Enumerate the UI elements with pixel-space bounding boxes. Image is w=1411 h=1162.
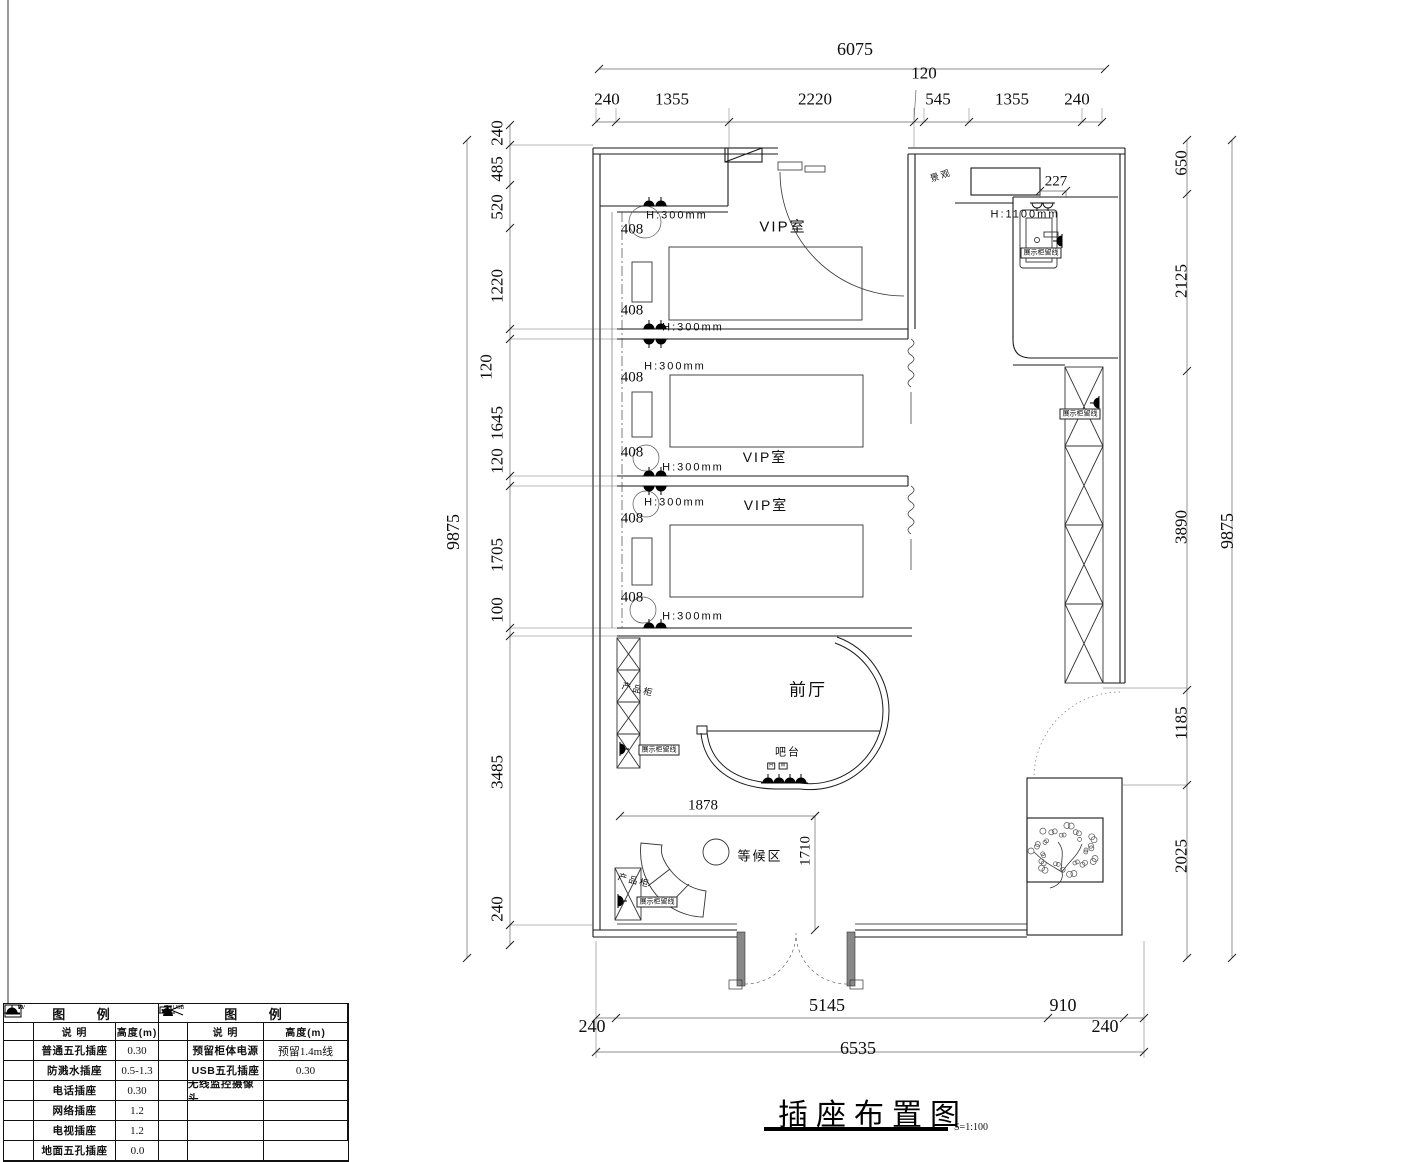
drawing-scale: S=1:100	[954, 1122, 988, 1133]
legend-height: 1.2	[116, 1101, 159, 1121]
legend-symbol-cell: TV	[4, 1121, 34, 1141]
dimension-lines	[467, 69, 1232, 1058]
plant-leaf	[1040, 828, 1046, 834]
legend-symbol-cell	[159, 1041, 188, 1061]
plant-leaf	[1039, 865, 1045, 871]
floor-plan-canvas	[0, 0, 1411, 1162]
socket-layout-drawing: 6075240135522201205451355240514591024024…	[0, 0, 1411, 1162]
socket-symbol	[772, 774, 786, 783]
socket-symbol	[642, 619, 656, 628]
socket-symbol	[620, 742, 629, 756]
legend-symbol-cell: USB	[159, 1061, 188, 1081]
socket-height-label: H:300mm	[662, 323, 724, 334]
dimension-label: 120	[489, 448, 506, 474]
socket-circles	[629, 206, 661, 623]
plant-leaf	[1067, 871, 1073, 877]
legend-height: 0.30	[116, 1041, 159, 1061]
legend-desc	[188, 1121, 264, 1141]
legend-height: 0.5-1.3	[116, 1061, 159, 1081]
legend-symbol-cell: P	[4, 1081, 34, 1101]
plant-leaf	[1028, 848, 1034, 854]
room-label: 前厅	[789, 682, 827, 699]
plant-leaf	[1068, 823, 1074, 829]
legend-desc	[188, 1101, 264, 1121]
dimension-label: 910	[1050, 996, 1077, 1014]
bar-counter	[697, 637, 889, 790]
dimension-label: 1355	[655, 91, 689, 108]
dimension-label: 120	[911, 65, 937, 82]
plant-leaf	[1042, 867, 1048, 873]
socket-symbol	[654, 339, 668, 348]
legend-column-header: 高度(m)	[116, 1023, 159, 1041]
socket-symbol	[1053, 234, 1062, 248]
dimension-label: 545	[925, 91, 951, 108]
dimension-label: 3485	[489, 755, 506, 789]
plant-leaf	[1073, 861, 1077, 865]
vip3-bed	[670, 525, 863, 597]
dimension-label: 408	[621, 304, 644, 319]
dimension-label: 408	[621, 446, 644, 461]
legend-desc: 普通五孔插座	[34, 1041, 116, 1061]
legend-symbol-cell	[159, 1121, 188, 1141]
legend-desc: USB五孔插座	[188, 1061, 264, 1081]
socket-symbol	[654, 486, 668, 495]
legend-desc: 无线监控摄像头	[188, 1081, 264, 1101]
dimension-label: 6535	[840, 1039, 876, 1057]
dimension-label: 3890	[1173, 510, 1190, 544]
legend-symbol-cell	[159, 1141, 188, 1161]
dimension-label: 240	[579, 1017, 606, 1035]
legend-desc: 电视插座	[34, 1121, 116, 1141]
legend-height: 预留1.4m线	[264, 1041, 348, 1061]
dimension-label: 1645	[489, 406, 506, 440]
room-label: VIP室	[759, 220, 806, 235]
socket-height-label: H:300mm	[646, 211, 708, 222]
dimension-label: 1710	[799, 836, 814, 866]
dimension-label: 240	[489, 120, 506, 146]
legend-desc: 电话插座	[34, 1081, 116, 1101]
dimension-label: 2220	[798, 91, 832, 108]
legend-height	[264, 1141, 348, 1161]
dimension-label: 227	[1045, 175, 1068, 190]
dimension-label: 520	[489, 194, 506, 220]
legend-desc: 预留柜体电源	[188, 1041, 264, 1061]
room-label: VIP室	[744, 498, 789, 512]
dimension-label: 408	[621, 371, 644, 386]
dimension-label: 2025	[1173, 839, 1190, 873]
dimension-label: 240	[1064, 91, 1090, 108]
plant-leaf	[1056, 862, 1060, 866]
dimension-label: 1355	[995, 91, 1029, 108]
legend-symbol-cell: W	[4, 1101, 34, 1121]
legend-table-right: 图 例说 明高度(m)预留柜体电源预留1.4m线USBUSB五孔插座0.30无线…	[158, 1003, 349, 1162]
dimension-label: 1185	[1173, 706, 1190, 739]
cabinet-reserve-label: 展示柜留线	[1060, 409, 1101, 420]
plant-leaf	[1071, 871, 1077, 877]
legend-height: 0.30	[264, 1061, 348, 1081]
dimension-label: 650	[1173, 150, 1190, 176]
socket-type-label: H	[767, 763, 775, 770]
plant-leaf	[1076, 831, 1081, 836]
dimension-label: 9875	[1218, 513, 1236, 549]
plant-leaf	[1062, 833, 1066, 837]
socket-symbol	[783, 774, 797, 783]
legend-height	[264, 1081, 348, 1101]
display-cabinets	[615, 367, 1103, 920]
dimension-label: 5145	[809, 996, 845, 1014]
dimension-label: 408	[621, 223, 644, 238]
legend-symbol-cell	[4, 1141, 34, 1161]
socket-height-label: H:300mm	[644, 362, 706, 373]
socket-height-label: H:1100mm	[991, 210, 1060, 221]
dimension-label: 6075	[837, 40, 873, 58]
socket-symbol	[642, 320, 656, 329]
axis-lines	[612, 212, 622, 628]
room-label: VIP室	[743, 450, 788, 464]
dimension-label: 120	[478, 354, 495, 380]
socket-height-label: H:300mm	[644, 498, 706, 509]
dimension-label: 240	[489, 896, 506, 922]
legend-height: 0.30	[116, 1081, 159, 1101]
cabinet-reserve-label: 展示柜留线	[639, 745, 680, 756]
legend-height: 1.2	[116, 1121, 159, 1141]
legend-height	[264, 1121, 348, 1141]
legend-desc	[188, 1141, 264, 1161]
plant-leaf	[1078, 837, 1082, 841]
round-table	[703, 839, 729, 865]
socket-symbol	[654, 197, 668, 206]
vip1-bed	[669, 247, 862, 320]
cabinet-reserve-label: 展示柜留线	[637, 897, 678, 908]
dimension-label: 408	[621, 591, 644, 606]
legend-column-header	[4, 1023, 34, 1041]
legend-desc: 防溅水插座	[34, 1061, 116, 1081]
dimension-label: 408	[621, 512, 644, 527]
vip2-bed	[670, 375, 863, 447]
legend-table-left: 图 例说 明高度(m)普通五孔插座0.30F防溅水插座0.5-1.3P电话插座0…	[3, 1003, 160, 1162]
dimension-label: 240	[594, 91, 620, 108]
dimension-label: 100	[489, 597, 506, 623]
legend-column-header: 说 明	[34, 1023, 116, 1041]
dimension-label: 1705	[489, 538, 506, 572]
plant-leaf	[1049, 830, 1054, 835]
plant-leaf	[1054, 862, 1058, 866]
socket-symbol	[794, 774, 808, 783]
legend-symbol-cell	[159, 1081, 188, 1101]
room-label: 吧台	[775, 748, 801, 759]
legend-symbol-cell: F	[4, 1061, 34, 1081]
socket-symbol	[642, 339, 656, 348]
socket-symbol	[642, 197, 656, 206]
legend-column-header	[159, 1023, 188, 1041]
socket-height-label: H:300mm	[662, 463, 724, 474]
legend-column-header: 高度(m)	[264, 1023, 348, 1041]
plant-leaf	[1052, 829, 1057, 834]
dimension-label: 1220	[489, 269, 506, 303]
dimension-label: 1878	[688, 799, 718, 814]
dimension-label: 240	[1092, 1017, 1119, 1035]
legend-desc: 网络插座	[34, 1101, 116, 1121]
curtains	[908, 339, 914, 570]
plant-leaf	[1073, 830, 1078, 835]
legend-desc: 地面五孔插座	[34, 1141, 116, 1161]
legend-symbol-cell	[4, 1041, 34, 1061]
legend-symbol-cell	[159, 1101, 188, 1121]
title-underline	[764, 1127, 948, 1131]
legend-height: 0.0	[116, 1141, 159, 1161]
legend-column-header: 说 明	[188, 1023, 264, 1041]
dimension-label: 485	[489, 156, 506, 182]
cabinet-reserve-label: 展示柜留线	[1021, 248, 1062, 259]
walls	[593, 148, 1125, 937]
dimension-label: 9875	[444, 514, 462, 550]
legend-height	[264, 1101, 348, 1121]
plant-leaf	[1075, 860, 1079, 864]
socket-symbol	[761, 774, 775, 783]
socket-height-label: H:300mm	[662, 612, 724, 623]
room-label: 等候区	[737, 850, 782, 863]
socket-type-label: W	[779, 763, 788, 770]
dimension-label: 2125	[1173, 264, 1190, 298]
legend-header: 图 例	[159, 1004, 348, 1023]
